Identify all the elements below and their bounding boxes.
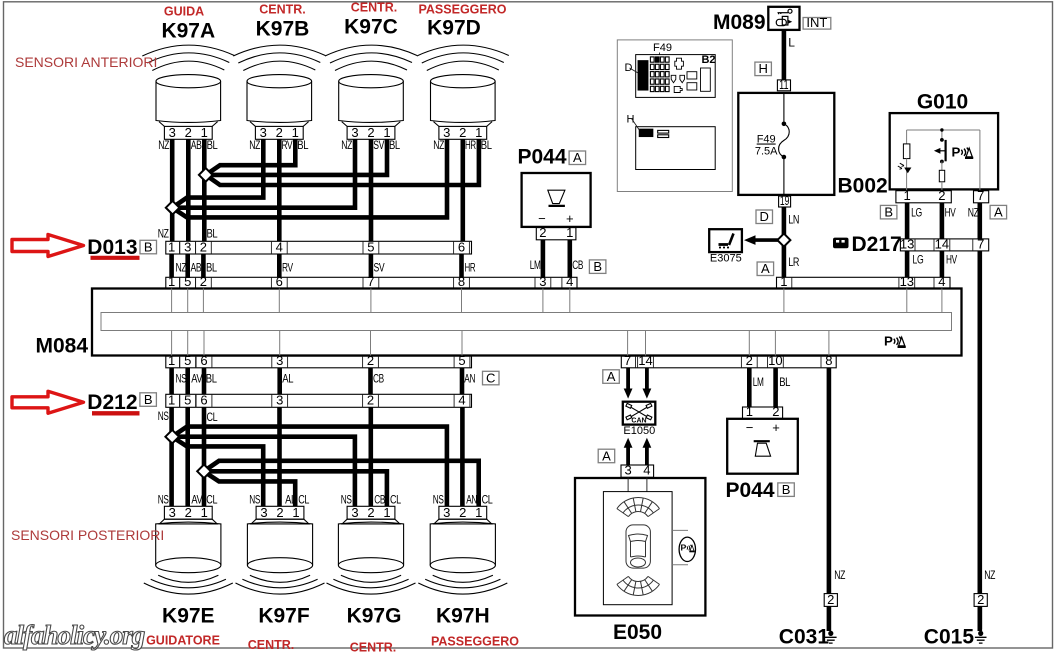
svg-text:CAN: CAN xyxy=(631,418,646,425)
svg-text:CENTR.: CENTR. xyxy=(350,641,397,654)
svg-text:HV: HV xyxy=(945,206,956,220)
svg-text:1: 1 xyxy=(168,274,175,289)
svg-text:14: 14 xyxy=(638,353,652,368)
svg-text:NZ: NZ xyxy=(176,261,187,275)
svg-text:6: 6 xyxy=(200,393,207,408)
svg-text:3: 3 xyxy=(260,505,267,520)
svg-text:F49: F49 xyxy=(757,134,776,146)
svg-text:E3075: E3075 xyxy=(710,253,742,265)
svg-text:1: 1 xyxy=(383,505,390,520)
svg-text:7.5A: 7.5A xyxy=(755,146,778,158)
svg-text:NZ: NZ xyxy=(984,568,995,582)
svg-text:4: 4 xyxy=(643,463,650,478)
svg-text:K97B: K97B xyxy=(256,18,310,41)
svg-text:INT: INT xyxy=(806,15,827,30)
svg-text:CL: CL xyxy=(298,493,309,507)
svg-text:3: 3 xyxy=(351,505,358,520)
svg-text:3: 3 xyxy=(443,125,450,140)
svg-text:B2: B2 xyxy=(701,54,715,66)
svg-text:L: L xyxy=(788,36,795,50)
svg-text:BL: BL xyxy=(779,375,790,389)
svg-text:−: − xyxy=(538,211,546,226)
svg-text:7: 7 xyxy=(624,353,631,368)
svg-text:NZ: NZ xyxy=(158,138,169,152)
svg-text:13: 13 xyxy=(900,236,914,251)
svg-text:2: 2 xyxy=(977,592,984,607)
svg-text:SV: SV xyxy=(373,138,384,152)
svg-text:CB: CB xyxy=(373,371,384,385)
svg-text:1: 1 xyxy=(292,505,299,520)
svg-text:B: B xyxy=(782,482,791,497)
svg-text:NZ: NZ xyxy=(433,138,444,152)
svg-text:1: 1 xyxy=(566,225,573,240)
svg-text:LR: LR xyxy=(788,255,799,269)
svg-text:BL: BL xyxy=(297,138,308,152)
svg-text:2: 2 xyxy=(276,505,283,520)
svg-text:3: 3 xyxy=(169,125,176,140)
svg-text:E050: E050 xyxy=(613,621,662,644)
svg-text:CB: CB xyxy=(572,258,583,272)
svg-text:BL: BL xyxy=(207,138,218,152)
svg-text:5: 5 xyxy=(367,239,374,254)
svg-text:BL: BL xyxy=(206,261,217,275)
svg-text:CL: CL xyxy=(390,493,401,507)
svg-text:K97H: K97H xyxy=(436,605,490,628)
svg-text:F49: F49 xyxy=(653,42,672,54)
svg-text:A: A xyxy=(761,261,770,276)
svg-text:AB: AB xyxy=(191,138,202,152)
svg-text:H: H xyxy=(758,61,767,76)
svg-text:1: 1 xyxy=(201,505,208,520)
svg-text:AV: AV xyxy=(191,371,202,385)
svg-text:2: 2 xyxy=(459,505,466,520)
svg-text:NZ: NZ xyxy=(968,206,979,220)
svg-text:RV: RV xyxy=(282,138,293,152)
svg-text:1: 1 xyxy=(903,188,910,203)
svg-text:NS: NS xyxy=(158,409,169,423)
svg-text:1: 1 xyxy=(168,239,175,254)
svg-text:BL: BL xyxy=(389,138,400,152)
svg-text:3: 3 xyxy=(276,353,283,368)
svg-text:5: 5 xyxy=(184,274,191,289)
svg-text:LG: LG xyxy=(911,206,922,220)
svg-text:B: B xyxy=(884,204,893,219)
svg-text:8: 8 xyxy=(458,274,465,289)
svg-text:2: 2 xyxy=(827,592,834,607)
svg-text:3: 3 xyxy=(443,505,450,520)
svg-text:14: 14 xyxy=(935,236,949,251)
svg-text:C015: C015 xyxy=(924,626,975,649)
svg-text:K97G: K97G xyxy=(347,605,402,628)
svg-text:BL: BL xyxy=(207,226,218,240)
svg-text:1: 1 xyxy=(746,404,753,419)
svg-text:M089: M089 xyxy=(713,11,766,34)
svg-text:P: P xyxy=(884,333,893,348)
svg-text:5: 5 xyxy=(184,353,191,368)
svg-text:alfaholicy.org: alfaholicy.org xyxy=(4,620,145,650)
svg-text:CENTR.: CENTR. xyxy=(259,3,306,17)
svg-text:10: 10 xyxy=(768,353,782,368)
svg-text:SENSORI ANTERIORI: SENSORI ANTERIORI xyxy=(15,54,157,70)
svg-text:K97F: K97F xyxy=(258,605,310,628)
svg-text:P: P xyxy=(681,543,687,553)
svg-text:NZ: NZ xyxy=(158,226,169,240)
svg-text:2: 2 xyxy=(200,274,207,289)
svg-text:AB: AB xyxy=(191,261,202,275)
svg-text:5: 5 xyxy=(458,353,465,368)
svg-text:A: A xyxy=(994,204,1003,219)
svg-text:B002: B002 xyxy=(838,175,888,198)
svg-text:2: 2 xyxy=(185,505,192,520)
svg-text:SV: SV xyxy=(374,261,385,275)
svg-text:1: 1 xyxy=(168,393,175,408)
svg-text:HR: HR xyxy=(465,261,476,275)
svg-text:K97A: K97A xyxy=(161,20,215,43)
svg-text:NS: NS xyxy=(341,493,352,507)
svg-text:1: 1 xyxy=(168,353,175,368)
svg-text:LN: LN xyxy=(788,213,799,227)
svg-text:2: 2 xyxy=(539,225,546,240)
svg-text:2: 2 xyxy=(200,239,207,254)
svg-text:BL: BL xyxy=(481,138,492,152)
svg-text:PASSEGGERO: PASSEGGERO xyxy=(419,3,507,17)
svg-text:D: D xyxy=(625,62,633,74)
svg-text:1: 1 xyxy=(475,505,482,520)
svg-text:LM: LM xyxy=(753,375,764,389)
svg-text:NZ: NZ xyxy=(834,568,845,582)
svg-text:K97D: K97D xyxy=(427,17,481,40)
svg-text:P044: P044 xyxy=(517,146,566,169)
svg-text:B: B xyxy=(144,392,153,407)
svg-text:4: 4 xyxy=(458,393,465,408)
svg-text:NS: NS xyxy=(249,493,260,507)
svg-text:CENTR.: CENTR. xyxy=(351,1,398,15)
svg-text:NS: NS xyxy=(176,371,187,385)
svg-text:2: 2 xyxy=(367,353,374,368)
svg-text:2: 2 xyxy=(938,188,945,203)
svg-text:19: 19 xyxy=(780,193,790,208)
svg-text:3: 3 xyxy=(260,125,267,140)
svg-text:CL: CL xyxy=(207,410,218,424)
svg-text:AL: AL xyxy=(282,371,293,385)
svg-text:2: 2 xyxy=(367,393,374,408)
svg-text:3: 3 xyxy=(184,239,191,254)
svg-text:RV: RV xyxy=(282,261,293,275)
svg-text:+: + xyxy=(772,420,780,435)
svg-text:D217: D217 xyxy=(852,233,902,256)
svg-text:B: B xyxy=(593,259,602,274)
svg-text:D212: D212 xyxy=(87,391,137,414)
svg-text:BL: BL xyxy=(206,371,217,385)
svg-text:8: 8 xyxy=(825,353,832,368)
svg-text:HR: HR xyxy=(465,138,476,152)
svg-text:CL: CL xyxy=(206,493,217,507)
svg-text:11: 11 xyxy=(779,77,789,92)
svg-text:K97C: K97C xyxy=(344,16,398,39)
svg-text:A: A xyxy=(607,369,616,384)
svg-text:SENSORI POSTERIORI: SENSORI POSTERIORI xyxy=(11,527,164,543)
svg-text:7: 7 xyxy=(367,274,374,289)
svg-text:2: 2 xyxy=(746,353,753,368)
svg-text:2: 2 xyxy=(367,505,374,520)
svg-text:5: 5 xyxy=(184,393,191,408)
svg-text:C031: C031 xyxy=(779,626,830,649)
svg-text:K97E: K97E xyxy=(162,605,215,628)
svg-text:NZ: NZ xyxy=(341,138,352,152)
svg-text:AN: AN xyxy=(464,371,475,385)
svg-text:7: 7 xyxy=(977,188,984,203)
svg-text:NZ: NZ xyxy=(249,138,260,152)
svg-text:NS: NS xyxy=(433,493,444,507)
svg-text:GUIDATORE: GUIDATORE xyxy=(146,634,220,648)
svg-text:G010: G010 xyxy=(917,91,968,114)
svg-text:PASSEGGERO: PASSEGGERO xyxy=(431,635,519,649)
svg-text:C: C xyxy=(486,370,495,385)
svg-text:P044: P044 xyxy=(725,479,774,502)
svg-text:HV: HV xyxy=(946,253,957,267)
svg-text:P: P xyxy=(952,144,961,159)
svg-text:7: 7 xyxy=(977,236,984,251)
svg-text:+: + xyxy=(566,211,574,226)
svg-text:E1050: E1050 xyxy=(623,425,655,437)
svg-text:2: 2 xyxy=(772,404,779,419)
svg-text:CL: CL xyxy=(482,493,493,507)
svg-text:4: 4 xyxy=(276,239,283,254)
svg-text:−: − xyxy=(746,420,754,435)
svg-text:6: 6 xyxy=(276,274,283,289)
svg-text:6: 6 xyxy=(458,239,465,254)
svg-text:3: 3 xyxy=(169,505,176,520)
svg-text:3: 3 xyxy=(276,393,283,408)
svg-text:LM: LM xyxy=(530,258,541,272)
svg-text:CENTR.: CENTR. xyxy=(248,638,295,652)
svg-text:B: B xyxy=(144,239,153,254)
svg-text:LG: LG xyxy=(913,253,924,267)
svg-text:A: A xyxy=(573,150,582,165)
svg-text:GUIDA: GUIDA xyxy=(164,5,204,19)
svg-text:NS: NS xyxy=(158,493,169,507)
svg-text:D: D xyxy=(760,209,769,224)
svg-text:D013: D013 xyxy=(87,236,137,259)
svg-text:3: 3 xyxy=(351,125,358,140)
svg-text:H: H xyxy=(627,114,635,126)
svg-text:M084: M084 xyxy=(35,335,88,358)
svg-text:3: 3 xyxy=(624,463,631,478)
svg-text:A: A xyxy=(602,448,611,463)
svg-text:6: 6 xyxy=(200,353,207,368)
